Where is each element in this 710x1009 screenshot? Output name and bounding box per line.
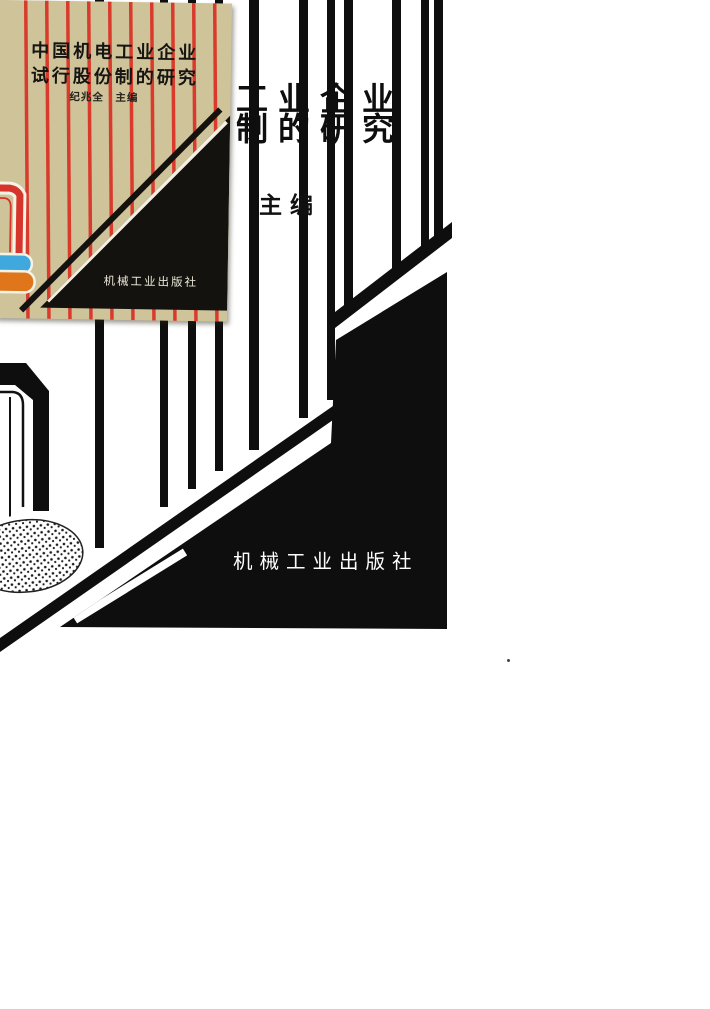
cover-title-fragment-line2: 制的研究 bbox=[236, 114, 404, 144]
inset-title-line1: 中国机电工业企业 bbox=[31, 36, 199, 65]
band-orange bbox=[0, 271, 35, 293]
inset-title-line2: 试行股份制的研究 bbox=[31, 61, 199, 90]
inset-publisher: 机械工业出版社 bbox=[103, 273, 198, 290]
baluster-bar bbox=[327, 0, 335, 400]
scan-speck bbox=[507, 659, 510, 662]
doorway-inner-outline bbox=[0, 392, 23, 507]
publisher-name-main: 机械工业出版社 bbox=[233, 545, 419, 574]
inset-cover-photo: 中国机电工业企业 试行股份制的研究 纪兆全 主编 机械工业出版社 bbox=[0, 0, 232, 322]
scanned-page: 工业企业 制的研究 : 主编 机械工业出版社 bbox=[0, 0, 710, 1009]
doorway-frame-shape bbox=[0, 363, 49, 511]
baluster-bar bbox=[434, 0, 443, 237]
inset-author: 纪兆全 主编 bbox=[69, 89, 138, 105]
baluster-bar bbox=[344, 0, 353, 306]
baluster-bar bbox=[249, 0, 259, 450]
editor-label: 主编 bbox=[259, 186, 321, 220]
baluster-bar bbox=[421, 0, 429, 247]
